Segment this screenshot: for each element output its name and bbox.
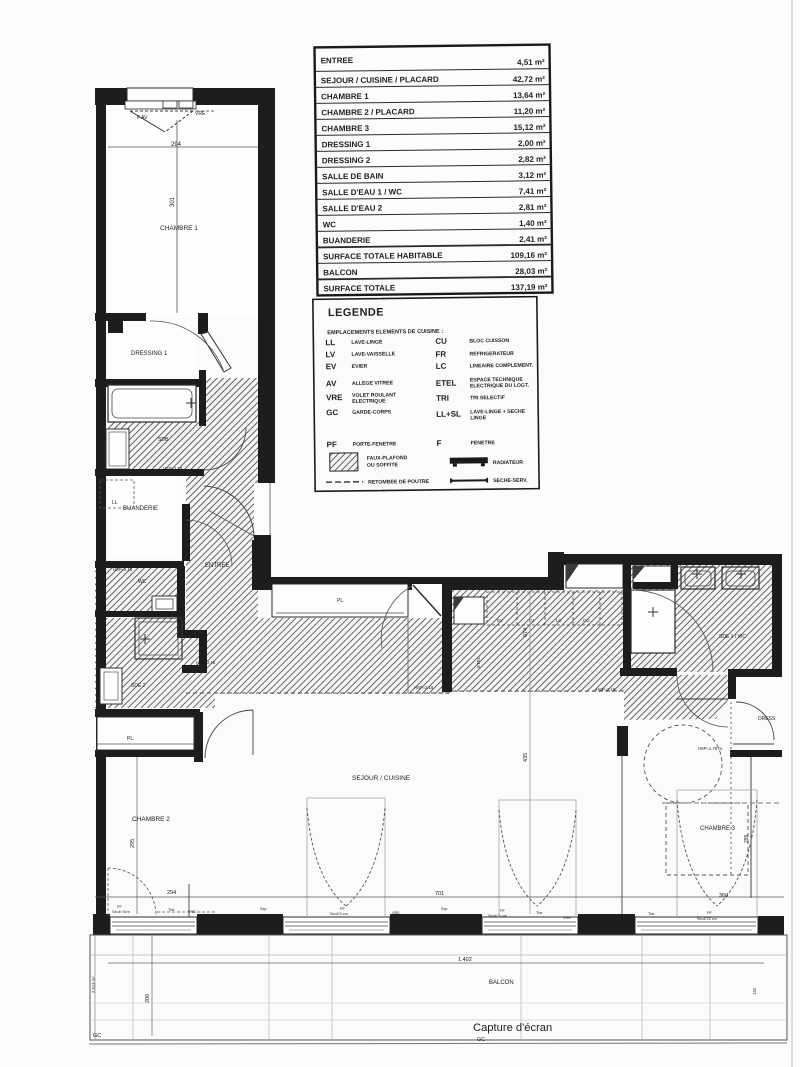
svg-text:CHAMBRE 1: CHAMBRE 1 [160, 225, 198, 232]
svg-text:1,40 m²: 1,40 m² [519, 219, 547, 228]
svg-text:ETEL: ETEL [436, 379, 457, 388]
svg-text:TRI SELECTIF: TRI SELECTIF [470, 395, 505, 401]
svg-text:SURFACE TOTALE: SURFACE TOTALE [323, 283, 395, 293]
svg-text:LAVE-LINGE: LAVE-LINGE [351, 340, 383, 346]
svg-text:SECHE-SERV.: SECHE-SERV. [493, 478, 528, 484]
svg-text:DRESSING 1: DRESSING 1 [131, 351, 168, 357]
svg-text:DRESSING 1: DRESSING 1 [322, 140, 371, 150]
svg-text:LC: LC [436, 362, 447, 371]
svg-text:CHAMBRE 3: CHAMBRE 3 [700, 826, 736, 832]
svg-text:Sxp: Sxp [441, 907, 448, 911]
svg-text:360: 360 [719, 893, 728, 899]
svg-text:674: 674 [523, 628, 529, 637]
svg-text:EVIER: EVIER [352, 364, 368, 370]
svg-text:FENETRE: FENETRE [471, 440, 496, 446]
svg-text:42,72 m²: 42,72 m² [513, 75, 545, 84]
svg-text:GARDE-CORPS: GARDE-CORPS [352, 409, 392, 415]
svg-text:CU: CU [435, 337, 447, 346]
svg-text:CHAMBRE 3: CHAMBRE 3 [321, 124, 369, 134]
svg-text:WC: WC [138, 579, 147, 585]
svg-text:EV: EV [326, 362, 337, 371]
svg-text:GC: GC [477, 1037, 485, 1043]
svg-text:LINGE: LINGE [470, 415, 486, 421]
svg-text:BALCON: BALCON [323, 268, 358, 277]
svg-text:PF: PF [340, 907, 346, 911]
svg-text:SEJOUR / CUISINE: SEJOUR / CUISINE [352, 775, 411, 782]
svg-text:3,12 m²: 3,12 m² [518, 171, 546, 180]
svg-text:VID: VID [257, 568, 261, 575]
svg-text:HSP=2.18: HSP=2.18 [196, 660, 216, 665]
svg-text:VRE: VRE [326, 393, 343, 402]
svg-text:Seuil 15 cm: Seuil 15 cm [697, 917, 717, 921]
svg-text:PF: PF [117, 905, 123, 909]
svg-text:295: 295 [130, 839, 136, 848]
svg-text:SDE 2: SDE 2 [131, 683, 146, 689]
svg-text:OU SOFFITE: OU SOFFITE [367, 462, 399, 468]
svg-text:11,20 m²: 11,20 m² [514, 107, 546, 116]
svg-text:HSP=2.18: HSP=2.18 [113, 567, 133, 572]
svg-text:LL: LL [112, 500, 118, 506]
svg-text:435: 435 [523, 753, 529, 762]
svg-text:1.402: 1.402 [458, 957, 472, 963]
svg-text:ETEL: ETEL [476, 656, 481, 668]
svg-text:FR: FR [435, 350, 446, 359]
svg-text:CHAMBRE 2 / PLACARD: CHAMBRE 2 / PLACARD [321, 107, 415, 117]
svg-text:SALLE D'EAU 1 / WC: SALLE D'EAU 1 / WC [322, 187, 402, 197]
svg-text:2,82 m²: 2,82 m² [518, 155, 546, 164]
svg-text:109,16 m²: 109,16 m² [511, 251, 548, 260]
svg-text:SEJOUR / CUISINE / PLACARD: SEJOUR / CUISINE / PLACARD [321, 75, 439, 85]
svg-text:ALLEGE VITREE: ALLEGE VITREE [352, 380, 394, 387]
svg-text:BUANDERIE: BUANDERIE [323, 236, 371, 246]
svg-text:DRESSING 2: DRESSING 2 [322, 156, 371, 166]
svg-text:2,81 m²: 2,81 m² [519, 203, 547, 212]
svg-text:ENTREE: ENTREE [321, 56, 354, 65]
svg-text:Tbe: Tbe [536, 911, 543, 915]
svg-text:TRI: TRI [436, 394, 449, 403]
svg-text:RADIATEUR: RADIATEUR [493, 460, 523, 466]
svg-text:Seuil 5 cm: Seuil 5 cm [330, 912, 348, 916]
svg-text:Tbe: Tbe [168, 908, 175, 912]
svg-text:BLOC CUISSON: BLOC CUISSON [469, 338, 509, 344]
svg-text:LV: LV [325, 350, 335, 359]
svg-text:PL.: PL. [337, 598, 345, 604]
svg-text:PF: PF [500, 909, 506, 913]
svg-text:PL.: PL. [127, 736, 135, 742]
svg-text:HSP=1.76 m: HSP=1.76 m [698, 746, 722, 751]
svg-text:ELECTRIQUE DU LOGT.: ELECTRIQUE DU LOGT. [470, 383, 530, 390]
svg-text:7,41 m²: 7,41 m² [519, 187, 547, 196]
svg-text:VRE: VRE [188, 910, 196, 914]
svg-text:VRE: VRE [195, 111, 206, 117]
svg-text:FAUX-PLAFOND: FAUX-PLAFOND [367, 455, 408, 461]
svg-text:VRE: VRE [563, 916, 571, 920]
svg-text:Tbe: Tbe [648, 912, 655, 916]
svg-text:WC: WC [323, 220, 337, 229]
svg-text:294: 294 [167, 890, 176, 896]
svg-text:140: 140 [752, 987, 757, 995]
svg-text:2,41 m²: 2,41 m² [519, 235, 547, 244]
svg-text:LEGENDE: LEGENDE [328, 306, 384, 319]
svg-text:GC: GC [93, 1033, 101, 1039]
svg-text:LC: LC [556, 618, 563, 623]
svg-text:GC: GC [326, 408, 338, 417]
svg-text:13,64 m²: 13,64 m² [513, 91, 545, 100]
svg-text:Sxp: Sxp [260, 907, 267, 911]
svg-text:PORTE-FENETRE: PORTE-FENETRE [353, 441, 397, 448]
svg-text:BALCON: BALCON [489, 980, 514, 986]
svg-text:Seuil: 5 cm: Seuil: 5 cm [488, 914, 507, 918]
svg-text:SURFACE TOTALE HABITABLE: SURFACE TOTALE HABITABLE [323, 251, 443, 261]
svg-text:HSP=2.18: HSP=2.18 [596, 687, 616, 692]
svg-text:LAVE-VAISSELLE: LAVE-VAISSELLE [351, 351, 395, 358]
svg-text:ELECTRIQUE: ELECTRIQUE [352, 398, 386, 404]
svg-text:F: F [437, 439, 442, 448]
svg-text:SALLE DE BAIN: SALLE DE BAIN [322, 172, 384, 182]
svg-text:REFRIGERATEUR: REFRIGERATEUR [469, 351, 514, 358]
svg-text:DRESS: DRESS [758, 716, 776, 722]
svg-text:15,12 m²: 15,12 m² [513, 123, 545, 132]
svg-text:LINEAIRE COMPLEMENT.: LINEAIRE COMPLEMENT. [470, 363, 534, 370]
svg-text:137,19 m²: 137,19 m² [511, 283, 548, 292]
svg-text:EV: EV [497, 618, 503, 623]
svg-text:2.513 m²: 2.513 m² [91, 976, 96, 993]
svg-text:RETOMBEE DE POUTRE: RETOMBEE DE POUTRE [368, 479, 430, 486]
svg-text:F AV: F AV [137, 115, 148, 121]
svg-text:200: 200 [145, 994, 151, 1003]
svg-text:SALLE D'EAU 2: SALLE D'EAU 2 [322, 204, 382, 214]
svg-text:LL+SL: LL+SL [436, 410, 461, 419]
svg-text:294: 294 [171, 142, 182, 148]
svg-text:4,51 m²: 4,51 m² [517, 58, 545, 67]
svg-text:SDB: SDB [158, 437, 169, 443]
svg-text:Capture d'écran: Capture d'écran [473, 1022, 552, 1034]
svg-text:28,03 m²: 28,03 m² [515, 267, 547, 276]
svg-text:CHAMBRE 1: CHAMBRE 1 [321, 92, 369, 102]
svg-text:PF: PF [707, 911, 713, 915]
svg-text:AV: AV [326, 379, 337, 388]
svg-text:2,00 m²: 2,00 m² [518, 139, 546, 148]
svg-text:701: 701 [435, 891, 444, 897]
svg-text:ENTREE: ENTREE [205, 563, 229, 569]
svg-text:LL: LL [325, 338, 335, 347]
svg-text:295: 295 [744, 834, 750, 843]
svg-text:VRE: VRE [392, 911, 400, 915]
svg-text:PF: PF [327, 440, 337, 449]
svg-text:SDE 1 / WC: SDE 1 / WC [719, 634, 746, 640]
svg-text:Seuil: 5cm: Seuil: 5cm [112, 910, 130, 914]
svg-text:301: 301 [170, 196, 176, 207]
svg-text:CHAMBRE 2: CHAMBRE 2 [132, 816, 170, 823]
svg-text:VRE: VRE [762, 918, 770, 922]
svg-text:HSP=2.18: HSP=2.18 [414, 685, 434, 690]
svg-text:BUANDERIE: BUANDERIE [123, 506, 158, 512]
svg-text:CU: CU [583, 618, 590, 623]
